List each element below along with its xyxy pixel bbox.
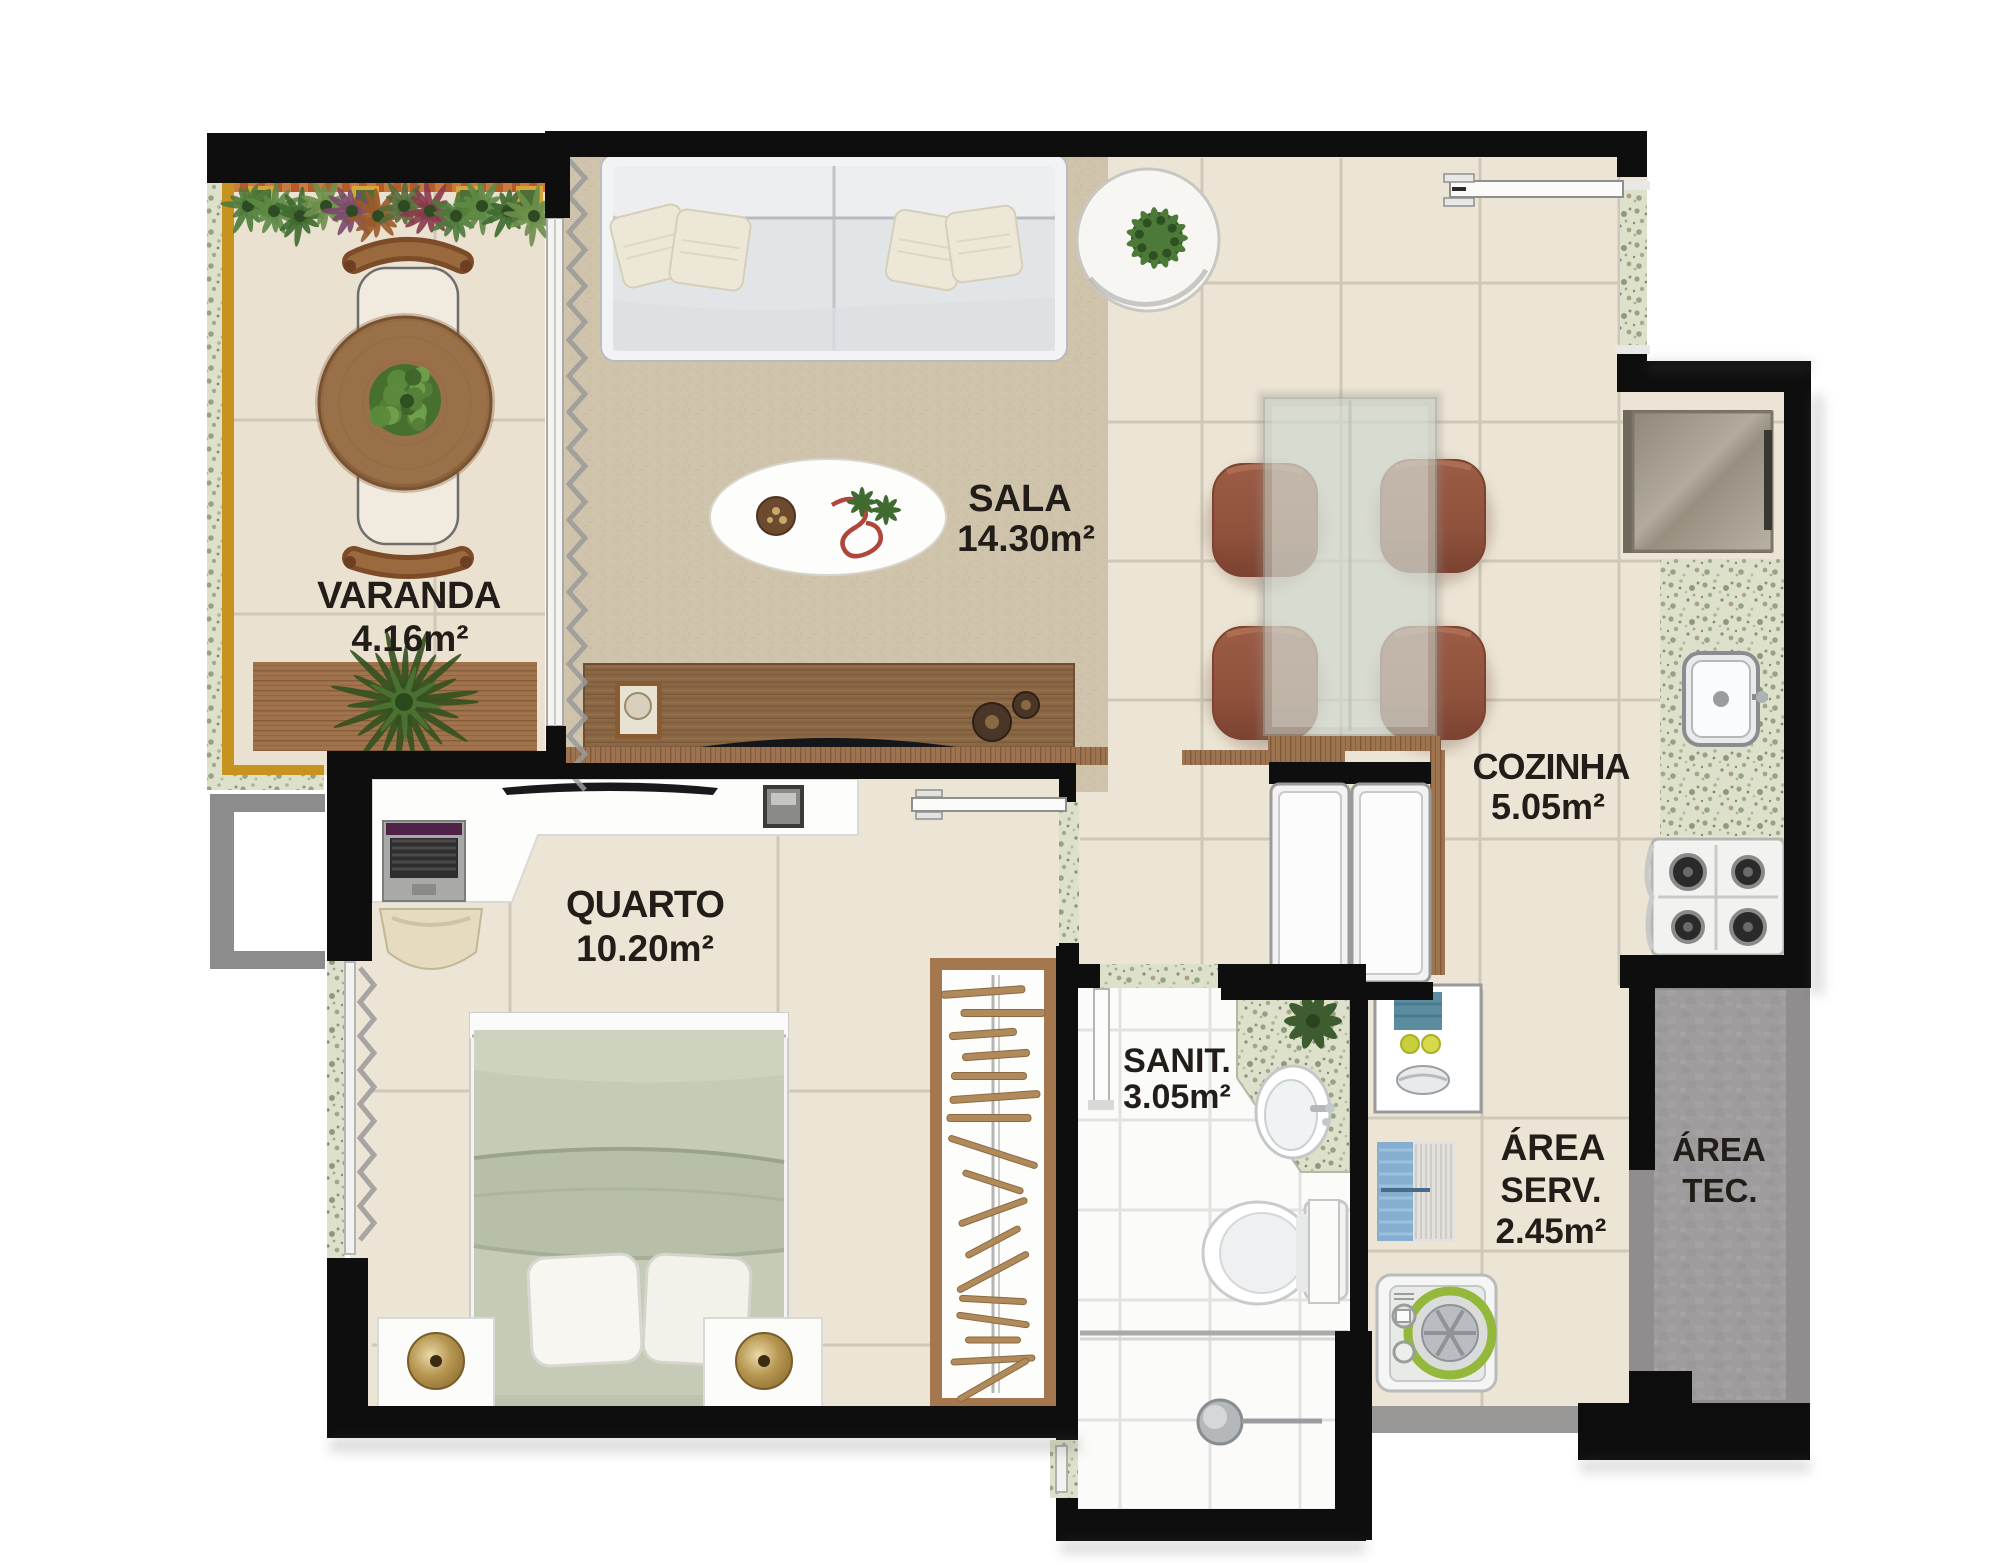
svg-text:14.30m²: 14.30m²: [957, 518, 1095, 559]
svg-text:SALA: SALA: [968, 478, 1071, 520]
svg-text:4.16m²: 4.16m²: [351, 618, 468, 659]
svg-text:VARANDA: VARANDA: [317, 575, 501, 617]
svg-text:10.20m²: 10.20m²: [576, 928, 714, 969]
svg-text:3.05m²: 3.05m²: [1123, 1078, 1231, 1116]
svg-text:ÁREA: ÁREA: [1501, 1127, 1606, 1168]
svg-text:5.05m²: 5.05m²: [1491, 786, 1605, 827]
svg-text:2.45m²: 2.45m²: [1496, 1212, 1607, 1251]
svg-text:TEC.: TEC.: [1682, 1172, 1757, 1209]
svg-text:QUARTO: QUARTO: [566, 884, 724, 926]
svg-text:SERV.: SERV.: [1500, 1171, 1601, 1210]
svg-text:SANIT.: SANIT.: [1123, 1042, 1231, 1080]
svg-text:ÁREA: ÁREA: [1672, 1131, 1766, 1168]
svg-text:COZINHA: COZINHA: [1473, 746, 1631, 787]
